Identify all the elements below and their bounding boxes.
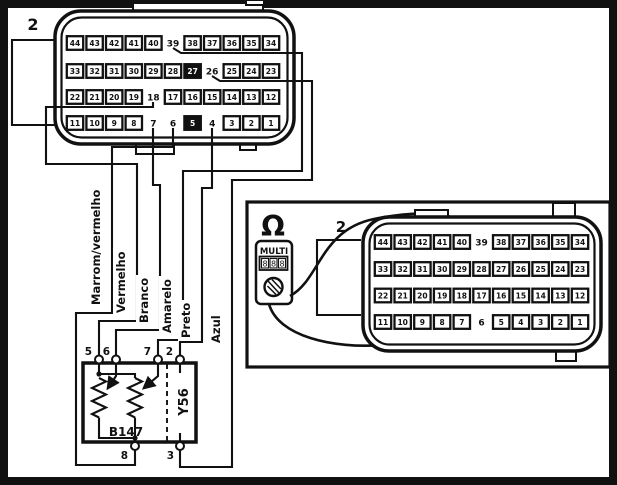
left-pin-17: 17 (168, 93, 178, 102)
left-pin-20: 20 (109, 93, 119, 102)
wire-label-amarelo: Amarelo (159, 276, 175, 336)
right-pin-17: 17 (476, 291, 486, 300)
right-pin-26: 26 (516, 265, 526, 274)
right-pin-35: 35 (555, 238, 565, 247)
left-pin-4: 4 (209, 119, 215, 129)
wire-label-preto: Preto (178, 300, 194, 341)
right-pin-41: 41 (437, 238, 447, 247)
left-pin-21: 21 (89, 93, 99, 102)
right-pin-34: 34 (575, 238, 585, 247)
left-pin-24: 24 (246, 67, 256, 76)
right-pin-27: 27 (496, 265, 506, 274)
left-pin-36: 36 (227, 39, 237, 48)
left-pin-7: 7 (150, 119, 156, 129)
left-pin-34: 34 (266, 39, 276, 48)
right-pin-37: 37 (516, 238, 526, 247)
actuator-label: Y56 (177, 388, 192, 417)
right-pin-28: 28 (476, 265, 486, 274)
right-pin-8: 8 (439, 318, 444, 327)
right-pin-38: 38 (496, 238, 506, 247)
terminal-5: 5 (85, 346, 92, 358)
multimeter-name: MULTI (260, 247, 288, 257)
right-pin-18: 18 (457, 291, 467, 300)
left-pin-38: 38 (187, 39, 197, 48)
left-pin-19: 19 (129, 93, 139, 102)
left-pin-32: 32 (89, 67, 99, 76)
left-pin-1: 1 (268, 119, 273, 128)
right-pin-14: 14 (535, 291, 545, 300)
right-pin-36: 36 (535, 238, 545, 247)
right-pin-23: 23 (575, 265, 585, 274)
left-pin-40: 40 (148, 39, 158, 48)
left-pin-44: 44 (70, 39, 80, 48)
right-pin-2: 2 (558, 318, 563, 327)
display-digit-1: 8 (262, 260, 267, 269)
right-pin-40: 40 (457, 238, 467, 247)
terminal-6: 6 (103, 346, 110, 358)
terminal-8: 8 (121, 450, 128, 462)
left-pin-31: 31 (109, 67, 119, 76)
terminal-3: 3 (167, 450, 174, 462)
left-pin-41: 41 (129, 39, 139, 48)
sensor-label: B147 (109, 425, 143, 439)
right-pin-29: 29 (457, 265, 467, 274)
right-pin-43: 43 (397, 238, 407, 247)
left-pin-14: 14 (227, 93, 237, 102)
ohm-symbol: Ω (261, 210, 285, 243)
right-pin-16: 16 (496, 291, 506, 300)
display-digit-2: 8 (271, 260, 276, 269)
left-pin-5: 5 (190, 119, 195, 128)
right-pin-31: 31 (417, 265, 427, 274)
left-pin-35: 35 (246, 39, 256, 48)
left-pin-9: 9 (112, 119, 117, 128)
right-pin-13: 13 (555, 291, 565, 300)
left-pin-43: 43 (89, 39, 99, 48)
left-pin-8: 8 (131, 119, 136, 128)
left-pin-10: 10 (89, 119, 99, 128)
left-pin-27: 27 (187, 67, 197, 76)
right-pin-32: 32 (397, 265, 407, 274)
right-pin-20: 20 (417, 291, 427, 300)
right-pin-25: 25 (535, 265, 545, 274)
right-pin-3: 3 (538, 318, 543, 327)
wire-label-vermelho: Vermelho (113, 248, 129, 316)
display-digit-3: 8 (279, 260, 284, 269)
right-pin-12: 12 (575, 291, 585, 300)
right-pin-10: 10 (397, 318, 407, 327)
right-pin-15: 15 (516, 291, 526, 300)
left-pin-30: 30 (129, 67, 139, 76)
left-pin-37: 37 (207, 39, 217, 48)
left-pin-29: 29 (148, 67, 158, 76)
left-pin-15: 15 (207, 93, 217, 102)
right-pin-24: 24 (555, 265, 565, 274)
right-pin-21: 21 (397, 291, 407, 300)
left-pin-26: 26 (206, 67, 219, 77)
right-pin-5: 5 (499, 318, 504, 327)
right-pin-1: 1 (577, 318, 582, 327)
right-pin-6: 6 (478, 318, 484, 328)
left-pin-25: 25 (227, 67, 237, 76)
left-connector-id: 2 (27, 15, 38, 34)
right-pin-39: 39 (475, 238, 488, 248)
left-pin-18: 18 (147, 93, 160, 103)
right-pin-19: 19 (437, 291, 447, 300)
wire-label-branco: Branco (136, 275, 152, 326)
left-pin-28: 28 (168, 67, 178, 76)
right-connector-id: 2 (336, 218, 346, 236)
right-pin-4: 4 (518, 318, 523, 327)
terminal-7: 7 (144, 346, 151, 358)
right-pin-9: 9 (420, 318, 425, 327)
wiring-diagram-screenshot: 2 B147 Y56 (0, 0, 617, 485)
left-pin-42: 42 (109, 39, 119, 48)
left-pin-3: 3 (229, 119, 234, 128)
left-pin-12: 12 (266, 93, 276, 102)
right-pin-30: 30 (437, 265, 447, 274)
terminal-2: 2 (166, 346, 173, 358)
wire-label-azul: Azul (208, 312, 224, 346)
left-pin-13: 13 (246, 93, 256, 102)
right-pin-7: 7 (459, 318, 464, 327)
right-pin-22: 22 (378, 291, 388, 300)
left-pin-6: 6 (170, 119, 176, 129)
right-pin-33: 33 (378, 265, 388, 274)
left-pin-16: 16 (187, 93, 197, 102)
right-pin-11: 11 (378, 318, 388, 327)
left-pin-22: 22 (70, 93, 80, 102)
right-pin-42: 42 (417, 238, 427, 247)
wire-label-marrom-vermelho: Marrom/vermelho (88, 187, 104, 308)
left-pin-23: 23 (266, 67, 276, 76)
right-pin-44: 44 (378, 238, 388, 247)
left-pin-39: 39 (167, 39, 180, 49)
left-pin-2: 2 (249, 119, 254, 128)
left-pin-33: 33 (70, 67, 80, 76)
left-pin-11: 11 (70, 119, 80, 128)
